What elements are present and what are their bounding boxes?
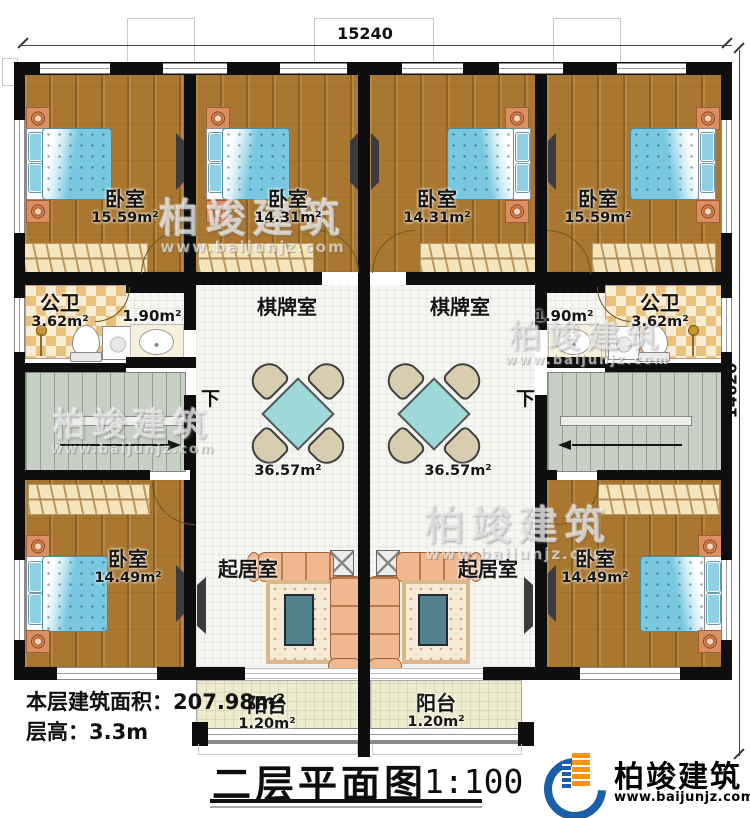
room-name: 起居室 (438, 558, 538, 580)
floor-area-note: 本层建筑面积：207.98m² (26, 686, 285, 716)
window (402, 63, 463, 74)
wall (585, 272, 732, 285)
label-bedroom-top-left: 卧室 15.59m² (55, 188, 195, 227)
nightstand (26, 535, 50, 558)
washbasin (556, 329, 591, 355)
room-area: 36.57m² (408, 463, 508, 479)
sliding-door (370, 668, 483, 679)
window (163, 63, 227, 74)
room-name: 卧室 (218, 188, 358, 210)
label-stairs-down-left: 下 (201, 384, 220, 411)
wall (184, 395, 196, 470)
nightstand (696, 200, 720, 223)
window (617, 63, 686, 74)
nightstand (26, 107, 50, 130)
wall (14, 363, 126, 372)
wardrobe (598, 484, 720, 515)
wall (597, 470, 732, 480)
window (721, 560, 732, 640)
window (14, 560, 25, 640)
wardrobe (592, 243, 716, 274)
tv (176, 133, 184, 190)
window (721, 298, 732, 352)
label-bedroom-top-midleft: 卧室 14.31m² (218, 188, 358, 227)
room-area: 1.90m² (530, 308, 598, 325)
wall (535, 62, 547, 285)
nightstand (505, 200, 529, 223)
stair-handrail (58, 416, 186, 426)
nightstand (698, 630, 722, 653)
floor-plan: 柏竣建筑 www.baijunjz.com 柏竣建筑 www.baijunjz.… (0, 0, 750, 818)
window (57, 667, 157, 680)
room-area: 14.49m² (58, 570, 198, 586)
label-bathroom-right: 公卫 3.62m² (618, 292, 702, 331)
dimension-line-top (22, 45, 732, 46)
wall (126, 357, 196, 368)
washbasin (139, 329, 174, 355)
coffee-table (284, 594, 314, 646)
label-bedroom-bottom-right: 卧室 14.49m² (525, 548, 665, 587)
drawing-scale: 1:100 (424, 762, 523, 801)
stair-handrail (560, 416, 692, 426)
logo-building-icon (562, 762, 571, 788)
room-name: 卧室 (367, 188, 507, 210)
pillow (29, 594, 42, 624)
wall-protrusion (553, 18, 621, 65)
room-name: 公卫 (618, 292, 702, 314)
label-wash-left: 1.90m² (118, 308, 186, 325)
washing-machine (608, 326, 640, 360)
label-livingroom-left: 起居室 (198, 558, 298, 580)
wall (14, 470, 150, 480)
tv (371, 133, 379, 190)
wall (535, 395, 547, 470)
pillow (209, 133, 222, 161)
room-name: 卧室 (55, 188, 195, 210)
pillow (707, 562, 720, 592)
room-area: 14.49m² (525, 570, 665, 586)
stair-direction-arrow-icon (168, 440, 181, 450)
window (721, 120, 732, 233)
room-area: 14.31m² (367, 210, 507, 226)
room-area: 1.20m² (386, 714, 486, 730)
wall (547, 357, 605, 368)
window (40, 63, 110, 74)
nightstand (206, 107, 230, 130)
label-balcony-right: 阳台 1.20m² (386, 692, 486, 731)
pillow (701, 133, 714, 161)
window (580, 667, 680, 680)
room-area: 3.62m² (18, 314, 102, 330)
room-name: 棋牌室 (400, 296, 520, 318)
wall (535, 470, 557, 480)
pillow (701, 164, 714, 192)
room-name: 棋牌室 (227, 296, 347, 318)
sofa (368, 576, 400, 662)
nightstand (26, 630, 50, 653)
wall (196, 667, 245, 680)
nightstand (698, 535, 722, 558)
pillow (29, 133, 42, 161)
room-area: 1.90m² (118, 308, 186, 325)
wall (358, 62, 370, 757)
label-chessroom-left: 棋牌室 (227, 296, 347, 318)
pillow (29, 562, 42, 592)
dimension-tick (17, 37, 28, 48)
room-area: 1.20m² (217, 716, 317, 732)
wall (406, 272, 535, 285)
title-underline-thin (210, 806, 482, 808)
label-bedroom-bottom-left: 卧室 14.49m² (58, 548, 198, 587)
floor-height-note: 层高：3.3m (26, 716, 148, 746)
pillow (29, 164, 42, 192)
label-wash-right: 1.90m² (530, 308, 598, 325)
towel-stand-pole (40, 334, 42, 356)
toilet-tank (70, 352, 102, 362)
wall (184, 62, 196, 285)
room-name: 公卫 (18, 292, 102, 314)
wall-protrusion (127, 18, 195, 65)
dimension-top-value: 15240 (332, 24, 398, 43)
wall (605, 363, 732, 372)
nightstand (505, 107, 529, 130)
wall (14, 272, 142, 285)
label-livingroom-right: 起居室 (438, 558, 538, 580)
label-chessroom-right: 棋牌室 (400, 296, 520, 318)
room-name: 卧室 (58, 548, 198, 570)
stair-direction-line (572, 444, 682, 446)
toilet-tank (638, 352, 670, 362)
dimension-tick (721, 37, 732, 48)
room-name: 阳台 (386, 692, 486, 714)
wall (192, 722, 208, 746)
window (280, 63, 347, 74)
room-area: 15.59m² (55, 210, 195, 226)
label-bathroom-left: 公卫 3.62m² (18, 292, 102, 331)
room-name: 起居室 (198, 558, 298, 580)
nightstand (696, 107, 720, 130)
wall (190, 470, 196, 480)
wardrobe (24, 243, 148, 274)
wall (483, 667, 535, 680)
pillow (516, 133, 529, 161)
label-chessroom-left-area: 36.57m² (238, 463, 338, 479)
brand-url: www.baijunjz.com (614, 790, 750, 805)
sliding-door (245, 668, 358, 679)
wall (185, 272, 322, 285)
logo-building-icon (572, 752, 590, 786)
stair-direction-line (60, 444, 170, 446)
coffee-table (418, 594, 448, 646)
wardrobe (28, 484, 150, 515)
window (14, 120, 25, 233)
dimension-right-value: 14620 (722, 351, 741, 431)
wardrobe (198, 243, 314, 274)
wall (518, 722, 534, 746)
room-area: 36.57m² (238, 463, 338, 479)
tv (350, 133, 358, 190)
room-area: 3.62m² (618, 314, 702, 330)
tv (548, 133, 556, 190)
brand-logo-icon (542, 750, 608, 812)
towel-stand-pole (692, 334, 694, 356)
room-area: 15.59m² (528, 210, 668, 226)
wardrobe (420, 243, 536, 274)
pillow (707, 594, 720, 624)
room-name: 卧室 (525, 548, 665, 570)
stair-direction-arrow-icon (558, 440, 571, 450)
label-bedroom-top-right: 卧室 15.59m² (528, 188, 668, 227)
room-area: 14.31m² (218, 210, 358, 226)
label-stairs-down-right: 下 (516, 384, 535, 411)
label-bedroom-top-midright: 卧室 14.31m² (367, 188, 507, 227)
nightstand (26, 200, 50, 223)
title-underline (210, 799, 482, 803)
label-chessroom-right-area: 36.57m² (408, 463, 508, 479)
window (499, 63, 563, 74)
room-name: 卧室 (528, 188, 668, 210)
tv (197, 577, 206, 634)
